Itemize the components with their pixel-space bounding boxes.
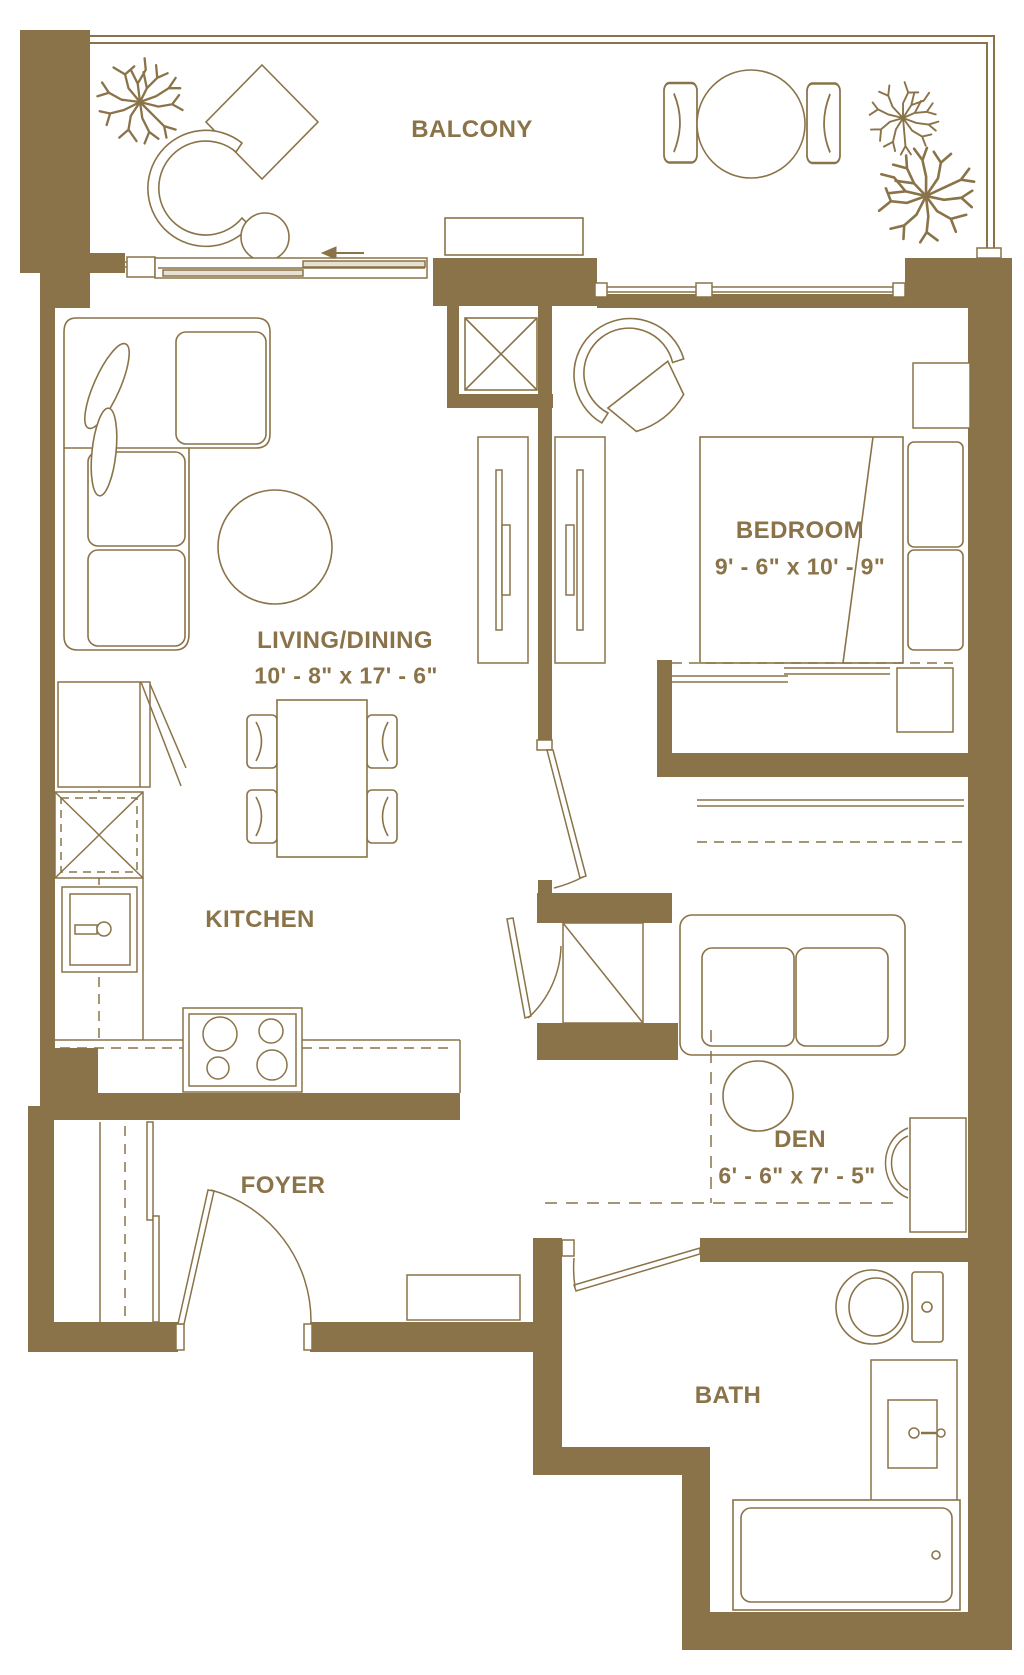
kitchen-label: KITCHEN [205, 906, 314, 934]
balcony-lounge-furniture [148, 65, 583, 261]
foyer-bench [407, 1275, 520, 1320]
floor-plan: BALCONY LIVING/DINING 10' - 8" x 17' - 6… [0, 0, 1024, 1675]
balcony-dining-set [664, 70, 840, 178]
den-dimensions: 6' - 6" x 7' - 5" [718, 1163, 875, 1190]
bath-vanity [871, 1360, 957, 1513]
refrigerator [58, 682, 186, 787]
den-label: DEN [774, 1126, 826, 1154]
bedroom-dimensions: 9' - 6" x 10' - 9" [715, 554, 885, 581]
tv-unit [478, 437, 528, 663]
balcony-label: BALCONY [411, 116, 532, 144]
living-dining-label: LIVING/DINING [257, 627, 433, 655]
bed [700, 437, 963, 663]
floor-plan-drawing [0, 0, 1024, 1675]
bedroom-door [537, 740, 586, 888]
hall-closet [507, 918, 643, 1023]
bath-door [562, 1240, 700, 1291]
stove [183, 1008, 302, 1092]
toilet [836, 1270, 943, 1344]
dining-set [247, 700, 397, 857]
tree-icon [863, 134, 986, 257]
tree-icon [854, 68, 953, 167]
kitchen-sink [62, 887, 137, 972]
bedroom-armchair [551, 296, 707, 452]
foyer-closet [100, 1122, 159, 1322]
bathtub [733, 1500, 960, 1610]
bedroom-label: BEDROOM [736, 517, 864, 545]
kitchen-sink-cabinet [55, 792, 143, 878]
foyer-label: FOYER [241, 1172, 326, 1200]
balcony-sliding-door [90, 257, 427, 278]
den-table [723, 1061, 793, 1131]
bedroom-dresser [555, 437, 605, 663]
living-dining-dimensions: 10' - 8" x 17' - 6" [254, 663, 438, 690]
entry-door [176, 1190, 312, 1350]
den-desk [886, 1118, 967, 1232]
sectional-sofa [64, 318, 270, 650]
den-sofa [680, 915, 905, 1055]
bath-label: BATH [695, 1382, 761, 1410]
door-swing-arrow-icon [322, 247, 364, 259]
shaft [465, 318, 537, 390]
nightstand [913, 363, 970, 428]
coffee-table [218, 490, 332, 604]
tree-icon [97, 58, 182, 143]
nightstand [897, 668, 953, 732]
